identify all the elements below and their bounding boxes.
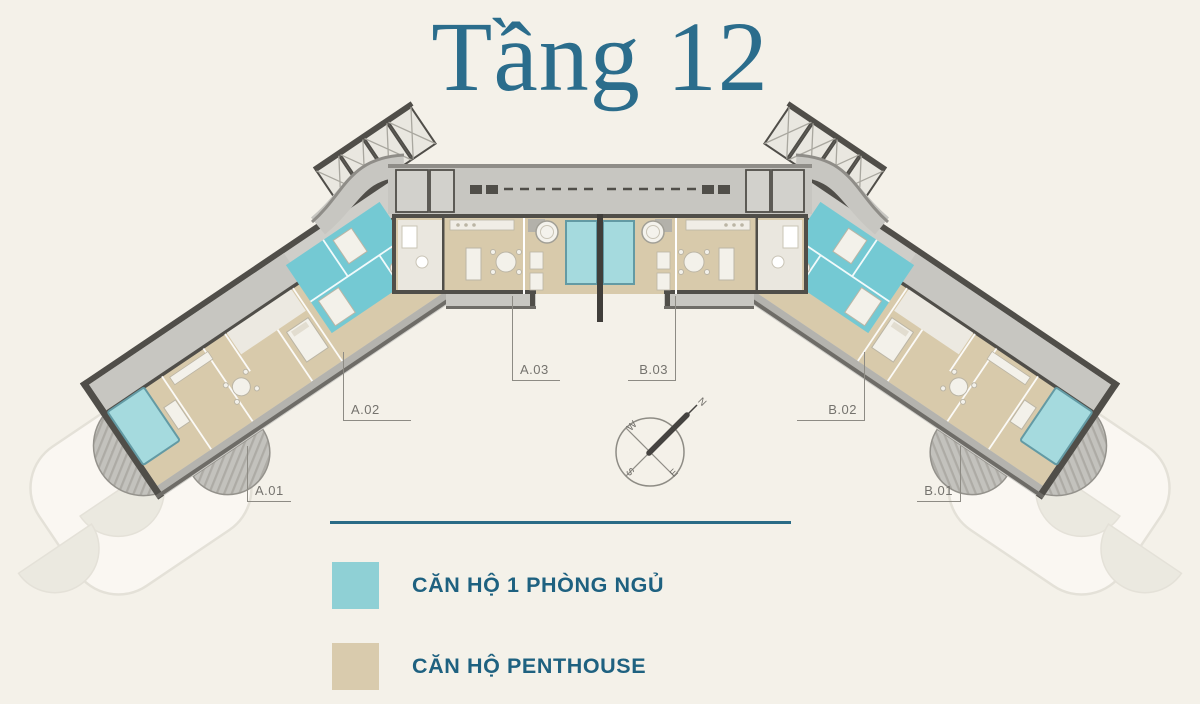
unit-label-a03: A.03 [512,296,560,381]
page-background: Tầng 12 [0,0,1200,704]
legend-item-penthouse: CĂN HỘ PENTHOUSE [332,643,664,690]
unit-label-b02: B.02 [797,352,865,421]
unit-label-a01: A.01 [247,446,291,502]
unit-label-a02: A.02 [343,352,411,421]
unit-label-b03: B.03 [628,296,676,381]
legend-label-penthouse: CĂN HỘ PENTHOUSE [412,654,646,679]
compass-north-label: N [695,396,708,409]
legend-label-one-bedroom: CĂN HỘ 1 PHÒNG NGỦ [412,573,664,598]
plan-right-half [600,101,1200,641]
legend-divider [330,521,791,524]
unit-label-a02-text: A.02 [351,402,380,417]
legend-swatch-penthouse [332,643,379,690]
compass-south-label: S [623,466,636,479]
legend-swatch-one-bedroom [332,562,379,609]
compass: N W S E [616,396,708,486]
legend-item-one-bedroom: CĂN HỘ 1 PHÒNG NGỦ [332,562,664,609]
unit-label-b03-text: B.03 [639,362,668,377]
unit-label-b01-text: B.01 [924,483,953,498]
plan-left-half [0,101,600,641]
unit-label-a03-text: A.03 [520,362,549,377]
legend: CĂN HỘ 1 PHÒNG NGỦ CĂN HỘ PENTHOUSE [332,562,664,704]
unit-label-b01: B.01 [917,446,961,502]
compass-needle [649,415,687,453]
unit-label-b02-text: B.02 [828,402,857,417]
unit-label-a01-text: A.01 [255,483,284,498]
